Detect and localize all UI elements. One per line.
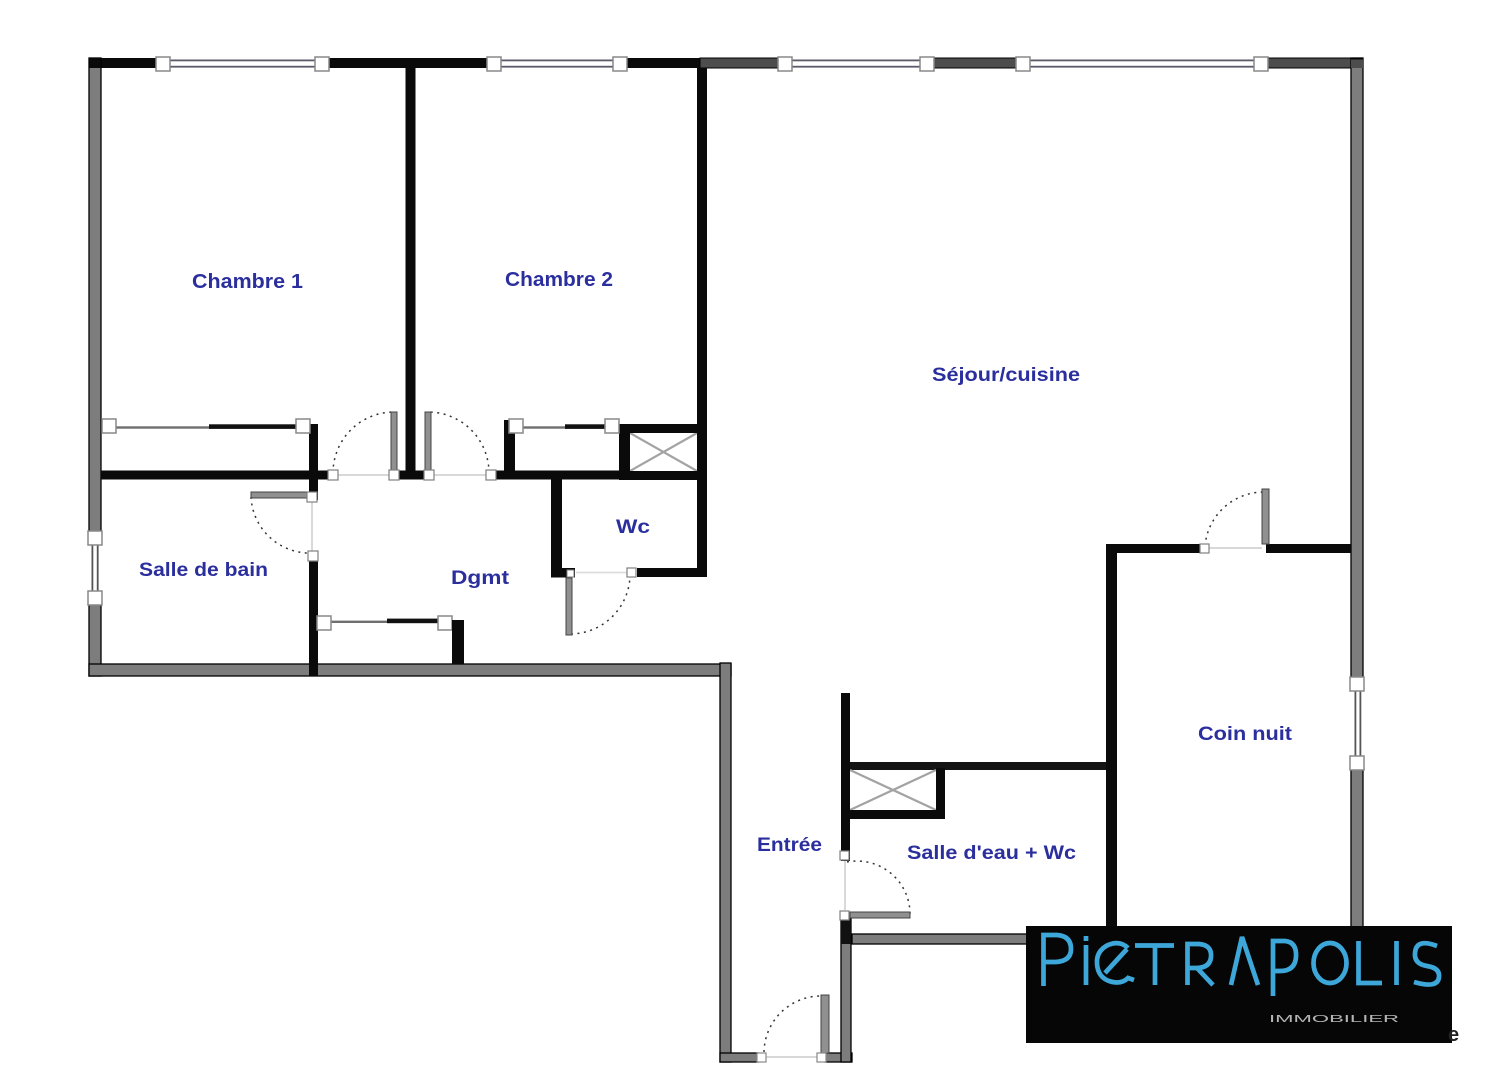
svg-text:Chambre 2: Chambre 2 xyxy=(505,268,613,291)
svg-text:Salle de bain: Salle de bain xyxy=(139,560,268,581)
svg-text:Séjour/cuisine: Séjour/cuisine xyxy=(932,364,1080,386)
svg-text:Salle d'eau + Wc: Salle d'eau + Wc xyxy=(907,843,1076,864)
svg-text:Coin nuit: Coin nuit xyxy=(1198,724,1293,745)
svg-text:Entrée: Entrée xyxy=(757,835,822,856)
svg-text:e: e xyxy=(1448,1024,1459,1046)
svg-text:Dgmt: Dgmt xyxy=(451,567,510,589)
svg-text:Chambre 1: Chambre 1 xyxy=(192,270,303,293)
svg-text:IMMOBILIER: IMMOBILIER xyxy=(1269,1013,1400,1025)
svg-text:Wc: Wc xyxy=(616,516,650,538)
